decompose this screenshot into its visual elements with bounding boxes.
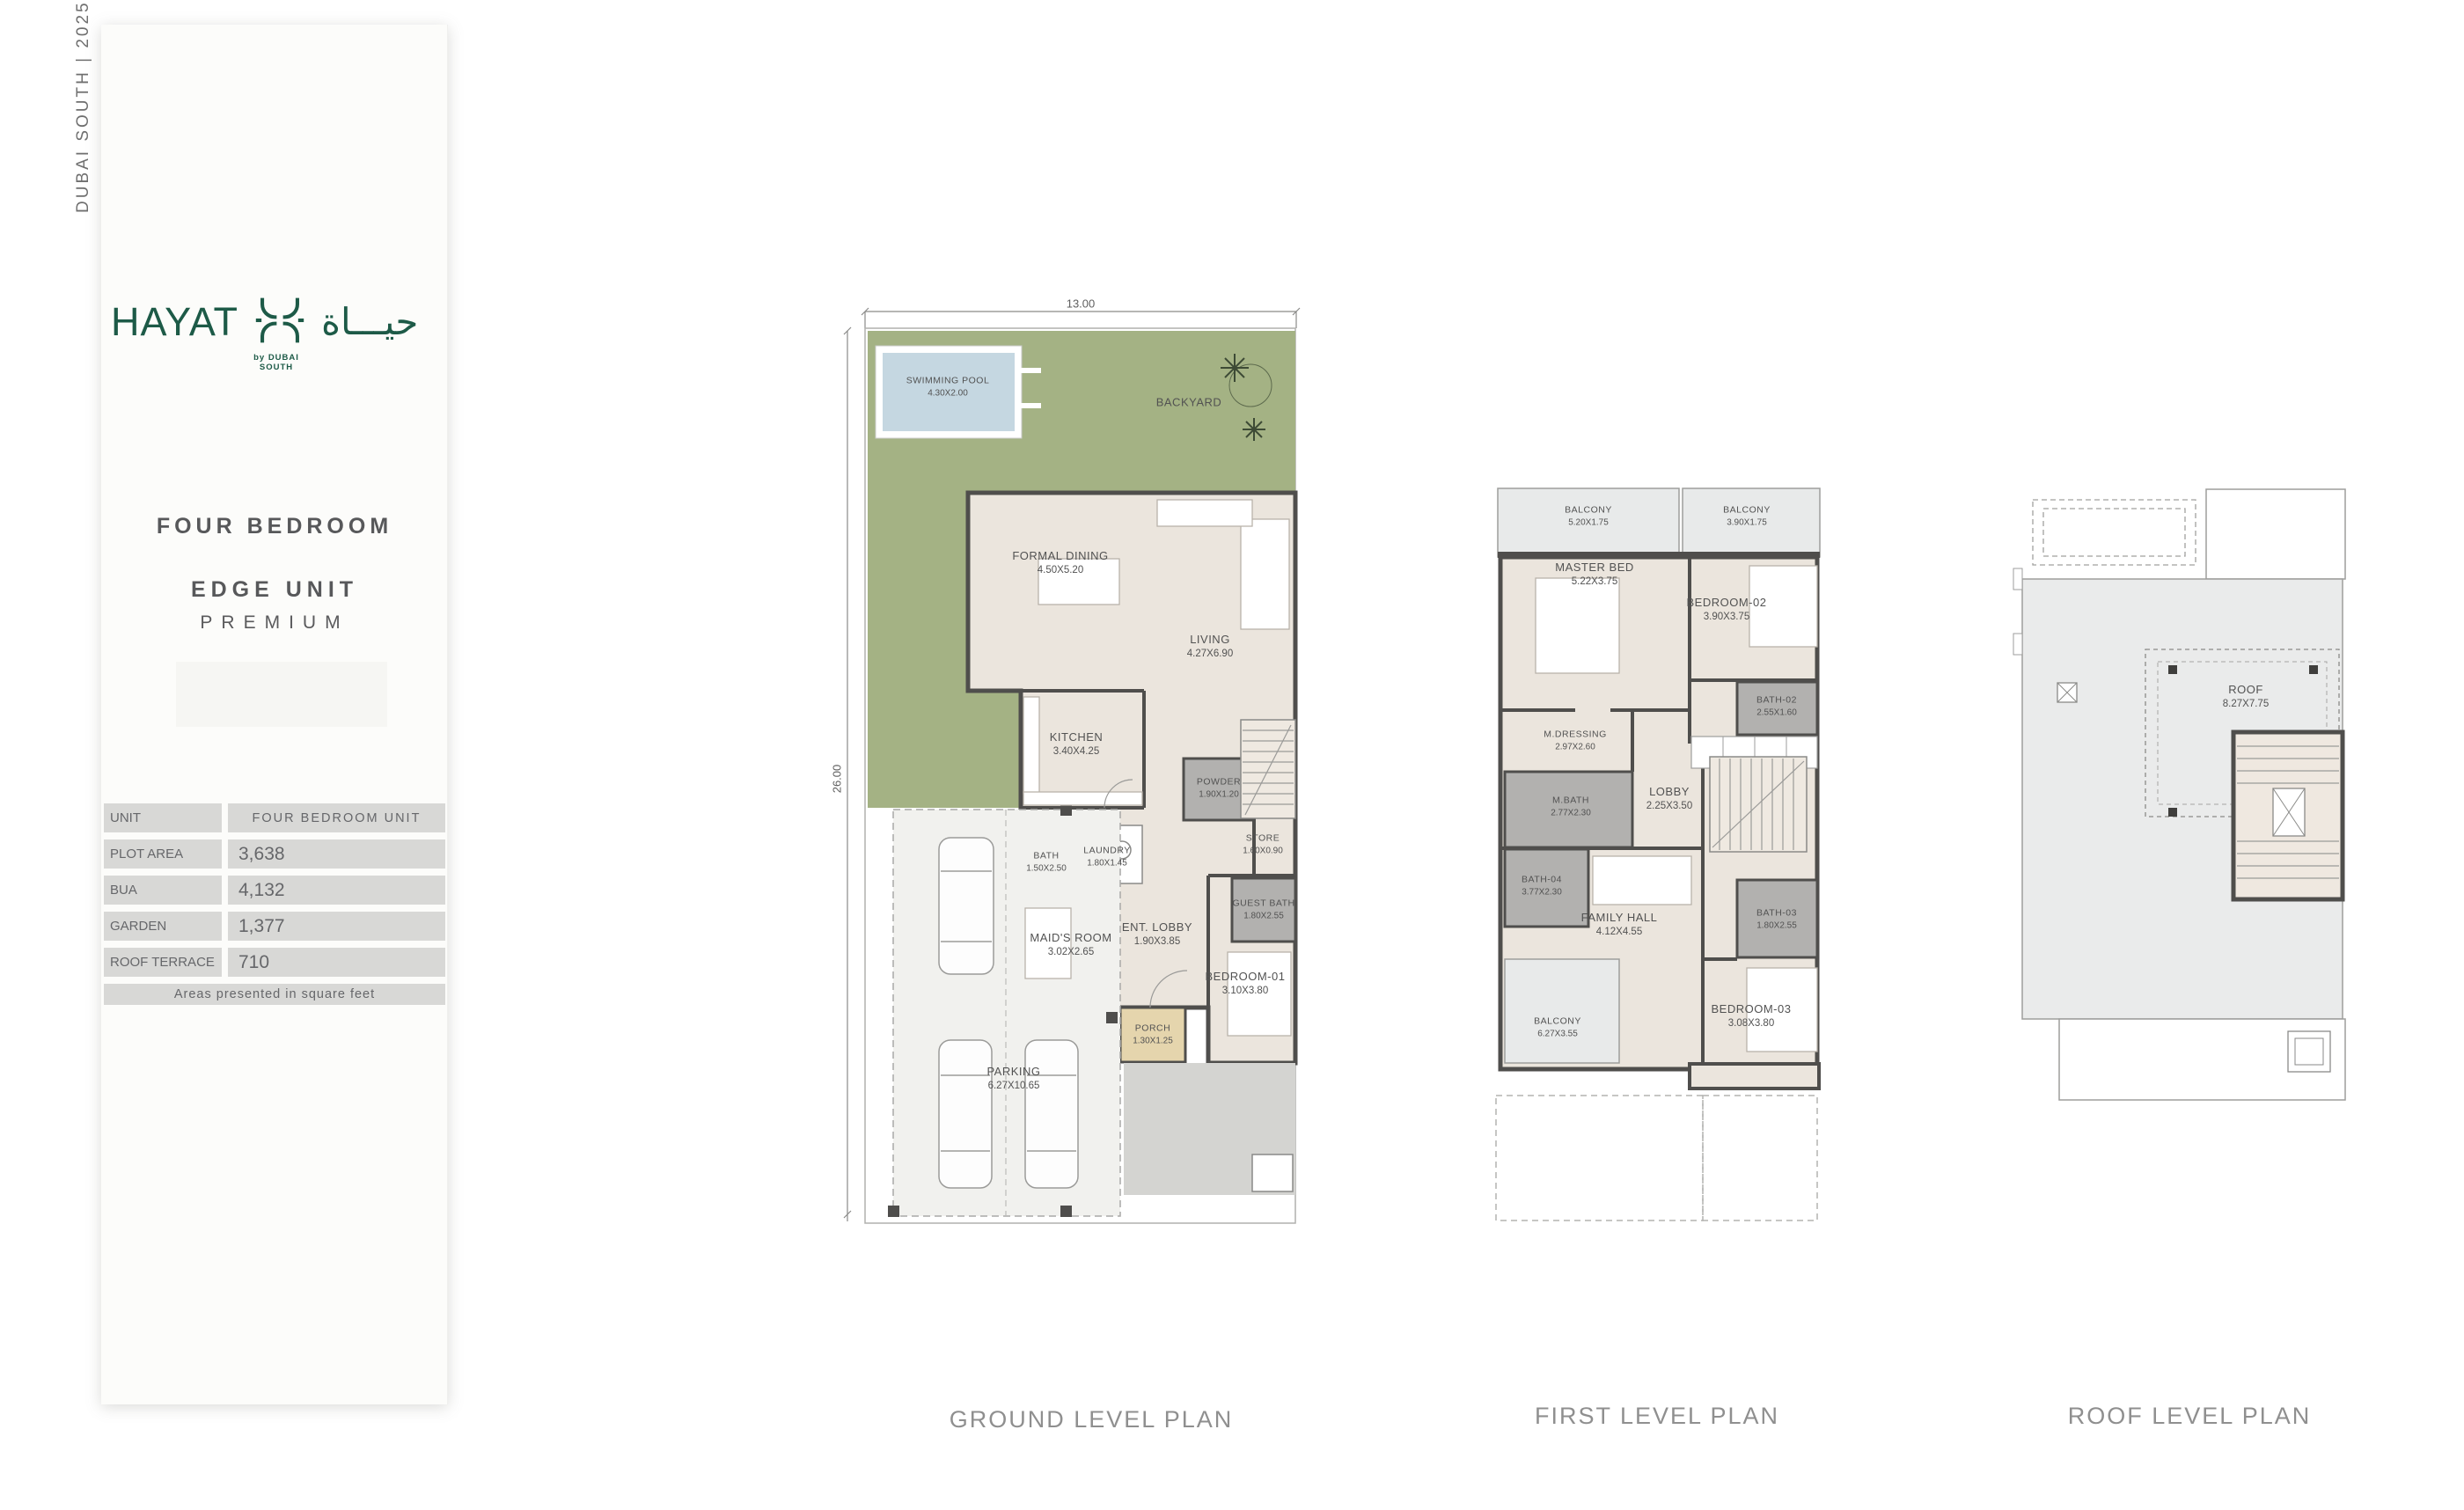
room-label-bath-04: BATH-04 3.77X2.30	[1522, 875, 1562, 898]
room-label-living: LIVING 4.27X6.90	[1187, 633, 1233, 661]
room-label-bath: BATH 1.50X2.50	[1026, 851, 1067, 875]
staircase	[1710, 757, 1807, 852]
table-row: BUA 4,132	[104, 876, 445, 905]
balcony-3-shape	[1505, 959, 1619, 1063]
table-row: PLOT AREA 3,638	[104, 839, 445, 869]
floor-plan-ground: 13.00 26.00 SWIMMING POOL 4.30X2.00 BACK…	[840, 299, 1307, 1232]
area-spec-table: UNIT FOUR BEDROOM UNIT PLOT AREA 3,638 B…	[104, 803, 445, 1005]
table-footnote: Areas presented in square feet	[104, 984, 445, 1005]
brand-logo: HAYAT حيـــاة	[111, 287, 445, 357]
room-label-bath-03: BATH-03 1.80X2.55	[1756, 908, 1797, 932]
room-label-bedroom-02: BEDROOM-02 3.90X3.75	[1687, 596, 1767, 624]
roof-hatch-box	[2288, 1031, 2330, 1072]
parapet-notch	[2013, 634, 2022, 655]
brand-byline: by DUBAI SOUTH	[236, 353, 317, 372]
room-label-m-dressing: M.DRESSING 2.97X2.60	[1544, 729, 1607, 753]
room-label-powder: POWDER 1.90X1.20	[1197, 777, 1241, 801]
ground-plan-title: GROUND LEVEL PLAN	[950, 1406, 1234, 1433]
brand-emblem-icon	[254, 293, 305, 352]
room-label-m-bath: M.BATH 2.77X2.30	[1551, 795, 1591, 819]
room-label-parking: PARKING 6.27X10.65	[986, 1065, 1040, 1093]
room-label-laundry: LAUNDRY 1.80X1.45	[1083, 846, 1131, 869]
room-label-guest-bath: GUEST BATH 1.80X2.55	[1232, 898, 1294, 922]
floor-plan-roof: ROOF 8.27X7.75	[2006, 484, 2358, 1109]
unit-grade: PREMIUM	[101, 612, 448, 634]
room-label-bedroom-01: BEDROOM-01 3.10X3.80	[1206, 970, 1286, 998]
row-label: BUA	[104, 876, 222, 905]
row-value: 1,377	[228, 912, 445, 941]
row-value: 4,132	[228, 876, 445, 905]
bedroom-03-extension	[1690, 1064, 1819, 1089]
staircase	[1241, 720, 1295, 818]
decorative-box	[176, 662, 387, 727]
edition-vertical-text: DUBAI SOUTH | 2025	[74, 37, 93, 213]
brand-wordmark: HAYAT	[111, 299, 238, 345]
room-label-store: STORE 1.60X0.90	[1243, 833, 1283, 857]
table-row: UNIT FOUR BEDROOM UNIT	[104, 803, 445, 832]
room-label-bath-02: BATH-02 2.55X1.60	[1756, 695, 1797, 719]
brand-arabic: حيـــاة	[321, 304, 418, 341]
ground-plan-drawing	[840, 299, 1307, 1232]
floor-plan-first: BALCONY 5.20X1.75 BALCONY 3.90X1.75 MAST…	[1487, 480, 1830, 1228]
room-label-formal-dining: FORMAL DINING 4.50X5.20	[1012, 549, 1108, 577]
row-value: 710	[228, 948, 445, 977]
table-row: ROOF TERRACE 710	[104, 948, 445, 977]
dim-height: 26.00	[831, 765, 844, 794]
row-label: PLOT AREA	[104, 839, 222, 869]
room-label-maids-room: MAID'S ROOM 3.02X2.65	[1030, 931, 1111, 959]
table-row: GARDEN 1,377	[104, 912, 445, 941]
room-label-kitchen: KITCHEN 3.40X4.25	[1050, 730, 1104, 759]
room-label-master-bed: MASTER BED 5.22X3.75	[1555, 561, 1634, 589]
unit-type-title: FOUR BEDROOM	[101, 514, 448, 539]
first-plan-title: FIRST LEVEL PLAN	[1535, 1403, 1779, 1430]
room-label-porch: PORCH 1.30X1.25	[1133, 1023, 1173, 1047]
roof-plan-drawing	[2006, 484, 2358, 1109]
dim-width: 13.00	[1067, 297, 1096, 311]
room-label-ent-lobby: ENT. LOBBY 1.90X3.85	[1122, 920, 1192, 949]
upper-parapet	[2206, 489, 2345, 579]
unit-subtitle: EDGE UNIT	[101, 577, 448, 603]
room-label-roof: ROOF 8.27X7.75	[2223, 683, 2269, 711]
room-label-lobby: LOBBY 2.25X3.50	[1646, 785, 1692, 813]
skylight-outline	[2033, 500, 2196, 565]
first-plan-drawing	[1487, 480, 1830, 1228]
room-label-balcony-1: BALCONY 5.20X1.75	[1565, 505, 1612, 529]
row-label: ROOF TERRACE	[104, 948, 222, 977]
row-value: 3,638	[228, 839, 445, 869]
row-label: UNIT	[104, 803, 222, 832]
stair-enclosure	[2233, 732, 2343, 899]
room-label-bedroom-03: BEDROOM-03 3.08X3.80	[1712, 1002, 1792, 1030]
lower-floor-outline	[1496, 1096, 1817, 1220]
room-label-backyard: BACKYARD	[1156, 396, 1222, 411]
vent-box	[2057, 683, 2077, 702]
parapet-notch	[2013, 568, 2022, 590]
room-label-family-hall: FAMILY HALL 4.12X4.55	[1581, 911, 1658, 939]
room-label-swimming-pool: SWIMMING POOL 4.30X2.00	[906, 376, 990, 399]
utility-box	[1252, 1154, 1293, 1191]
roof-plan-title: ROOF LEVEL PLAN	[2068, 1403, 2312, 1430]
room-label-balcony-2: BALCONY 3.90X1.75	[1723, 505, 1771, 529]
row-label: GARDEN	[104, 912, 222, 941]
room-label-balcony-3: BALCONY 6.27X3.55	[1534, 1016, 1581, 1040]
row-value: FOUR BEDROOM UNIT	[228, 803, 445, 832]
